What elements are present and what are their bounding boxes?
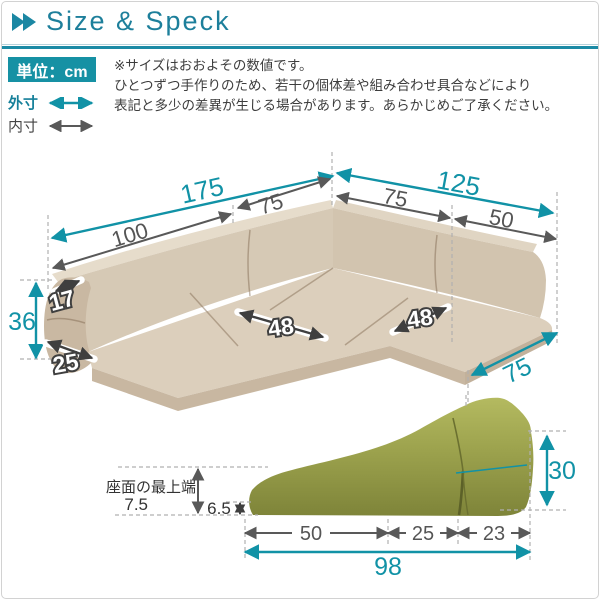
label-seat-top: 座面の最上端 [106,479,196,496]
note-line: ※サイズはおおよその数値です。 [114,56,594,76]
dim-back-top-depth: 17 [46,284,77,316]
dim-seg-mid: 25 [412,523,434,545]
note-line: 表記と多少の差異が生じる場合があります。あらかじめご了承ください。 [114,96,594,116]
dim-seg-front: 50 [300,523,322,545]
corner-sofa-illustration [44,200,552,411]
arrow-back-right [455,219,556,239]
unit-badge: 単位：cm [8,57,96,82]
dim-total-back-left: 175 [178,171,227,210]
dimension-arrows [36,173,557,375]
dim-total-length: 98 [374,553,402,581]
double-triangle-right-icon [12,13,36,31]
legend-outer-dimension: 外寸 [8,92,98,113]
dim-corner-left: 75 [255,188,286,219]
dimension-arrows-bottom [198,436,547,552]
arrow-seat-depth [472,333,557,375]
dim-corner-right: 75 [381,183,410,212]
arrow-total-back-right [337,173,553,213]
legend-inner-dimension: 内寸 [8,115,98,136]
dim-total-back-right: 125 [435,164,483,201]
dim-back-bottom-depth: 25 [51,348,81,378]
arrow-back-top-depth [56,281,79,291]
dim-seat-width-right: 48 [405,303,434,332]
arrow-corner-right [337,196,450,218]
dim-back-height: 36 [8,308,36,336]
header-divider-teal [2,46,598,49]
sofa-size-diagram: 175 125 100 75 75 50 36 75 17 25 48 48 [0,140,600,425]
page-title: Size & Speck [46,6,231,37]
disclaimer-notes: ※サイズはおおよその数値です。 ひとつずつ手作りのため、若干の個体差や組み合わせ… [114,56,594,116]
header-divider-light [2,44,598,45]
dim-seg-back: 23 [483,523,505,545]
dashed-guides [20,152,557,420]
dim-seat-top-height: 7.5 [124,495,148,514]
arrow-corner-left [238,179,330,208]
dim-back-right: 50 [487,204,516,233]
dim-back-left: 100 [109,218,151,253]
dim-front-edge-height: 6.5 [207,499,231,518]
arrow-seat-width-left [240,313,323,337]
header: Size & Speck [0,0,600,43]
arrow-seat-width-right [395,308,446,331]
dim-seat-depth: 75 [499,352,536,389]
dim-seat-width-left: 48 [266,312,295,341]
arrow-back-bottom-depth [48,342,92,358]
inner-dimension-arrow-icon [44,120,98,132]
legend-outer-label: 外寸 [8,92,38,113]
wedge-cushion-illustration [249,398,533,516]
note-line: ひとつずつ手作りのため、若干の個体差や組み合わせ具合などにより [114,76,594,96]
outer-dimension-arrow-icon [44,97,98,109]
legend-inner-label: 内寸 [8,115,38,136]
dashed-guides-bottom [115,395,566,563]
cushion-size-diagram: 座面の最上端 7.5 6.5 50 25 23 98 30 [0,395,600,590]
cushion-seam-line [456,465,527,473]
arrow-total-back-left [52,176,333,238]
dim-back-height-cushion: 30 [548,457,576,485]
arrow-back-left [53,214,231,268]
